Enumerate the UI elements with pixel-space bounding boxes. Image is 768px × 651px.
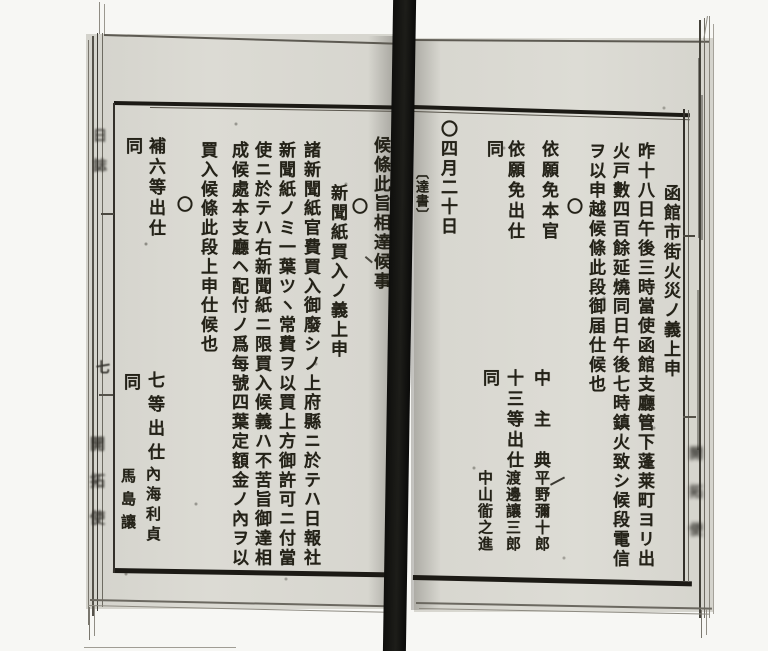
person-name: 渡邊讓三郎: [505, 470, 520, 553]
page-edge-line: [99, 2, 100, 34]
person-rank-ditto: 同: [121, 373, 138, 390]
column-newspaper-line3: 使ニ於テハ右新聞紙ニ限買入候義ハ不苦旨御達相: [252, 141, 269, 568]
column-newspaper-line4: 成候處本支廳ヘ配付ノ爲每號四葉定額金ノ內ヲ以: [229, 141, 246, 568]
column-newspaper-title: 新聞紙買入ノ義上申: [328, 184, 345, 360]
margin-tick: [683, 416, 696, 418]
column-dismissal-action3-ditto: 同: [484, 140, 501, 157]
date-text: 四月二十日: [437, 139, 457, 236]
margin-tick: [99, 394, 113, 396]
ink-smudge: [698, 58, 700, 238]
page-edge-line: [94, 606, 95, 636]
column-newspaper-line5: 買入候條此段上申仕候也: [198, 141, 215, 354]
column-fire-report-line3: ヲ以申越候條此段御届仕候也: [586, 142, 603, 394]
column-fire-report-line1: 昨十八日午後三時當使函館支廳管下蓬莱町ヨリ出: [635, 142, 652, 569]
person-name: 馬島讓: [120, 468, 135, 537]
page-edge-line: [709, 16, 710, 618]
entry-marker: 〇: [565, 198, 581, 214]
column-date: 〇四月二十日: [438, 120, 455, 236]
page-edge-line: [706, 609, 707, 635]
page-edge-line: [84, 647, 236, 648]
page-number: 七: [95, 360, 109, 374]
person-rank: 七等出仕: [145, 371, 162, 467]
entry-marker: 〇: [350, 198, 366, 214]
column-fire-report-title: 函館市街火災ノ義上申: [661, 184, 678, 379]
column-carryover-text: 候條此旨相達候事: [371, 136, 388, 291]
margin-tick: [683, 235, 695, 237]
person-name: 中山衜之進: [477, 470, 492, 553]
publisher-mark: 開拓使: [89, 436, 104, 547]
column-dismissal-action2: 依願免出仕: [505, 140, 522, 243]
publisher-mark-blurred: 開拓使: [688, 446, 702, 560]
margin-tick: [101, 213, 114, 215]
column-appointment-action1: 補六等出仕: [146, 137, 163, 240]
running-title: 日誌: [92, 128, 106, 188]
column-dismissal-action1: 依願免本官: [539, 140, 556, 243]
ink-smudge: [697, 290, 699, 450]
section-label-tassho: 〔達書〕: [414, 166, 427, 222]
page-edge-line: [89, 607, 90, 640]
person-name: 內海利貞: [145, 466, 160, 546]
column-newspaper-line1: 諸新聞紙官費買入御廢シノ上府縣ニ於テハ日報社: [301, 141, 318, 568]
column-newspaper-line2: 新聞紙ノミ一葉ツヽ常費ヲ以買上方御許可ニ付當: [276, 141, 293, 568]
scanned-book-spread: 函館市街火災ノ義上申 昨十八日午後三時當使函館支廳管下蓬莱町ヨリ出 火戸數四百餘…: [0, 0, 768, 651]
page-edge-line: [704, 18, 705, 618]
column-fire-report-line2: 火戸數四百餘延燒同日午後七時鎮火致シ候段電信: [610, 142, 627, 569]
page-edge-line: [104, 4, 105, 34]
page-edge-line: [713, 24, 714, 614]
ink-smudge: [701, 95, 703, 240]
person-name: 平野彌十郎: [534, 470, 549, 553]
person-rank-ditto: 同: [480, 369, 497, 386]
frame-border-left: [113, 103, 115, 573]
page-edge-line: [701, 610, 702, 638]
person-rank: 十三等出仕: [504, 369, 521, 472]
column-appointment-action2-ditto: 同: [123, 137, 140, 154]
frame-border-right: [683, 109, 685, 581]
entry-marker: 〇: [437, 120, 457, 139]
entry-marker: 〇: [175, 196, 191, 212]
